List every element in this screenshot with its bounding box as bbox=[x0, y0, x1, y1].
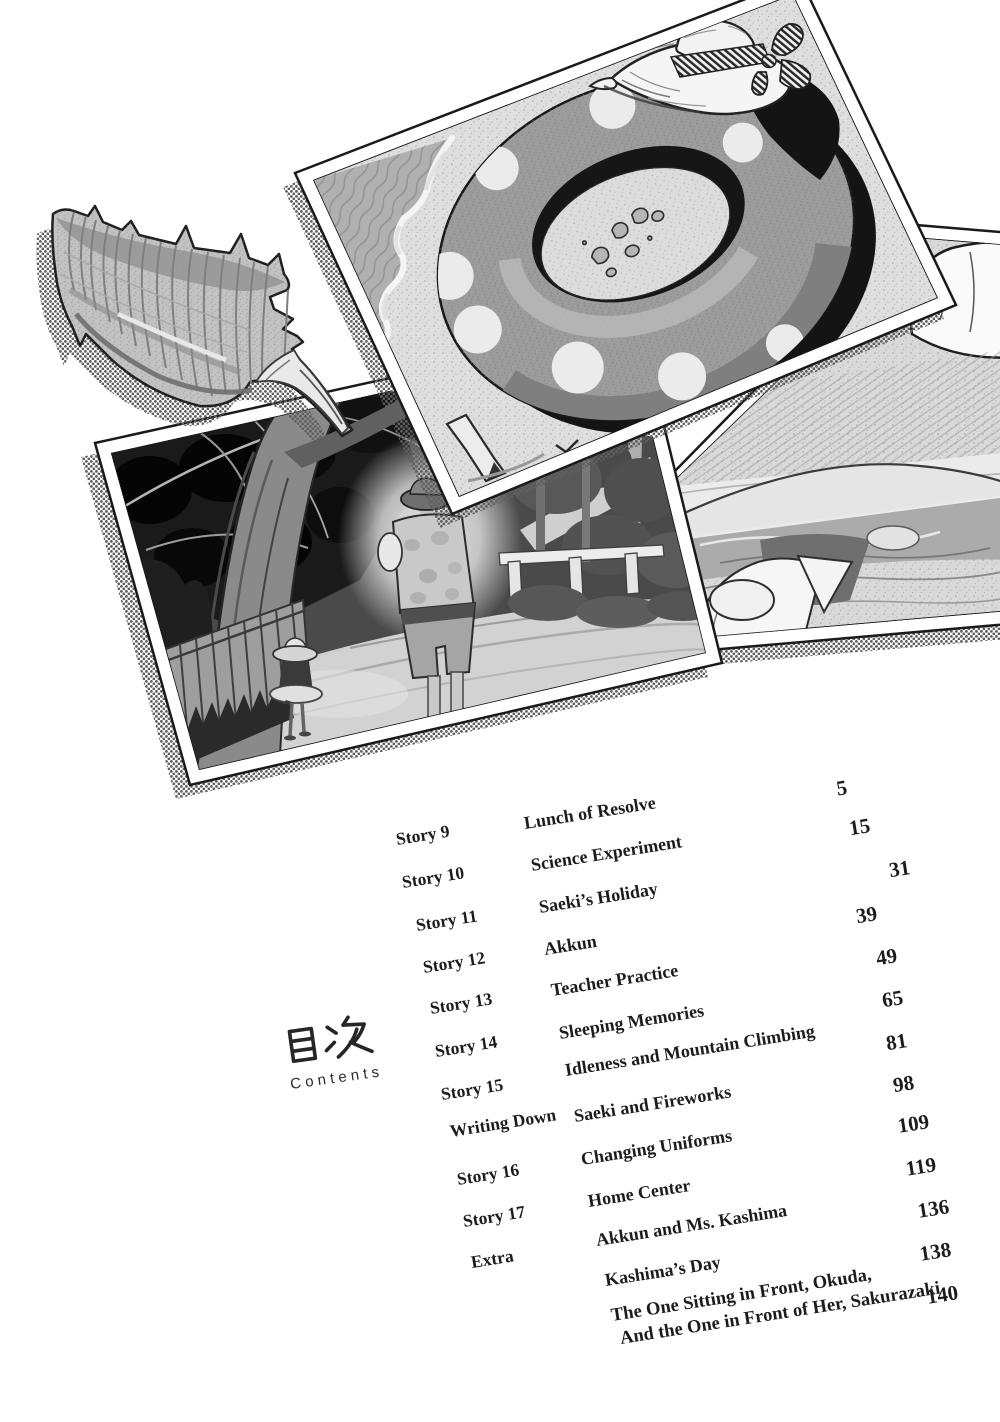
svg-text:65: 65 bbox=[880, 985, 904, 1012]
svg-text:15: 15 bbox=[847, 813, 871, 840]
svg-text:136: 136 bbox=[916, 1194, 951, 1223]
svg-text:49: 49 bbox=[874, 943, 898, 970]
svg-text:138: 138 bbox=[918, 1237, 953, 1266]
svg-text:98: 98 bbox=[891, 1070, 915, 1097]
svg-text:119: 119 bbox=[904, 1152, 938, 1180]
svg-text:31: 31 bbox=[887, 855, 911, 882]
svg-text:39: 39 bbox=[854, 901, 878, 928]
svg-text:109: 109 bbox=[896, 1109, 931, 1138]
svg-text:81: 81 bbox=[884, 1028, 908, 1055]
